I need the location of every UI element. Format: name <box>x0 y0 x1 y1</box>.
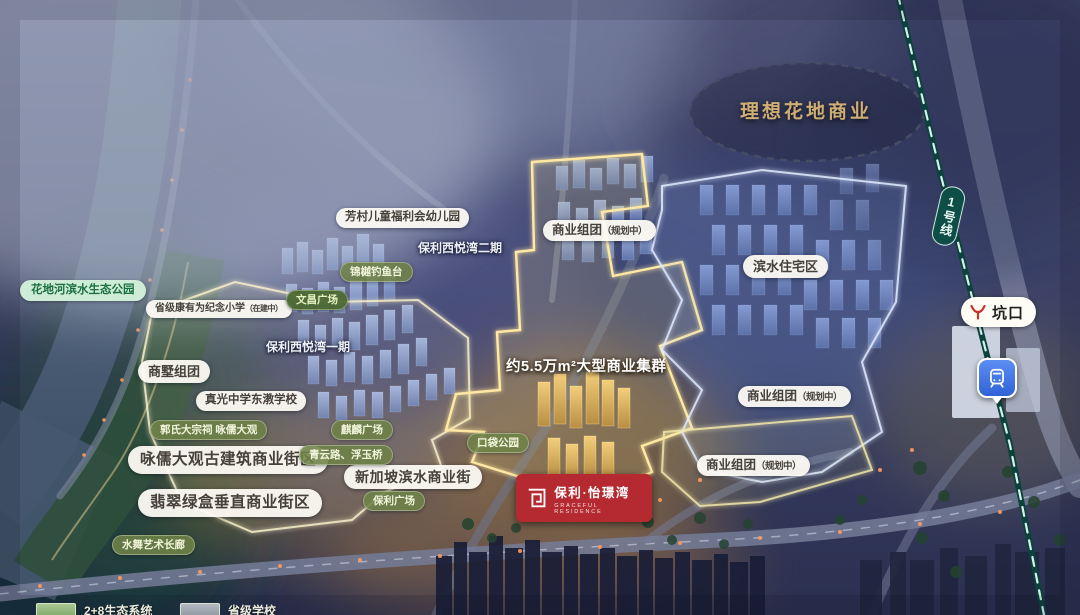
biz-group-note: （规划中） <box>756 461 801 472</box>
label-poly-plaza: 保利广场 <box>363 491 425 511</box>
station-name: 坑口 <box>992 302 1024 323</box>
legend-swatch-gray <box>180 603 220 615</box>
label-poly-xiyuewan-phase2: 保利西悦湾二期 <box>418 242 502 254</box>
label-kindergarten: 芳村儿童福利会幼儿园 <box>336 208 469 228</box>
biz-group-text: 商业组团 <box>552 223 602 237</box>
brand-subtitle: GRACEFUL RESIDENCE <box>554 503 643 515</box>
label-kangyouwei-note: （在建中） <box>245 304 283 313</box>
label-biz-group-east: 商业组团（规划中） <box>738 386 851 407</box>
legend-label: 2+8生态系统 <box>84 602 152 615</box>
legend-swatch-green <box>36 603 76 615</box>
label-kangyouwei-school-text: 省级康有为纪念小学 <box>155 303 245 314</box>
label-jinyue-diaoyutai: 锦樾钓鱼台 <box>340 262 413 282</box>
label-jade-green-box-street: 翡翠绿盒垂直商业街区 <box>138 489 322 517</box>
label-zhenguang-school: 真光中学东漖学校 <box>196 391 306 411</box>
label-water-art-gallery: 水舞艺术长廊 <box>112 535 195 555</box>
biz-group-text: 商业组团 <box>706 458 756 472</box>
guangzhou-metro-logo-icon <box>969 303 987 321</box>
label-biz-group-north: 商业组团（规划中） <box>543 220 656 241</box>
label-biz-group-southeast: 商业组团（规划中） <box>697 455 810 476</box>
label-wenchang-plaza: 文昌广场 <box>286 290 348 310</box>
label-yongru-heritage-street: 咏儒大观古建筑商业街区 <box>128 446 328 474</box>
legend-item-ecosystem: 2+8生态系统 <box>36 602 152 615</box>
commercial-cluster-title: 约5.5万m²大型商业集群 <box>506 360 666 375</box>
label-singapore-street: 新加坡滨水商业街 <box>344 465 482 489</box>
label-waterfront-residential: 滨水住宅区 <box>743 255 828 278</box>
metro-station-marker <box>977 358 1017 398</box>
legend-item-school: 省级学校 <box>180 602 276 615</box>
legend-label: 省级学校 <box>228 602 276 615</box>
brand-name: 保利·怡璟湾 <box>554 482 643 501</box>
label-huadi-river-park: 花地河滨水生态公园 <box>20 280 146 301</box>
label-poly-xiyuewan-phase1: 保利西悦湾一期 <box>266 341 350 353</box>
poly-brand-logo: 保利·怡璟湾 GRACEFUL RESIDENCE <box>516 474 652 522</box>
train-icon <box>986 367 1008 389</box>
label-kangyouwei-school: 省级康有为纪念小学（在建中） <box>146 300 292 318</box>
label-guoshi-ancestral-hall: 郭氏大宗祠 咏儒大观 <box>150 420 267 440</box>
label-qilin-plaza: 麒麟广场 <box>331 420 393 440</box>
biz-group-note: （规划中） <box>797 392 842 403</box>
metro-station-kengkou: 坑口 <box>961 297 1036 327</box>
aerial-masterplan-map: 理想花地商业 约5.5万m²大型商业集群 芳村儿童福利会幼儿园 省级康有为纪念小… <box>0 0 1080 615</box>
label-pocket-park: 口袋公园 <box>467 433 529 453</box>
label-villa-group: 商墅组团 <box>138 360 210 383</box>
ideal-huadi-title: 理想花地商业 <box>740 103 872 122</box>
poly-emblem-icon <box>525 486 547 510</box>
label-qingyun-fuyu-bridge: 青云路、浮玉桥 <box>299 445 393 465</box>
biz-group-text: 商业组团 <box>747 389 797 403</box>
biz-group-note: （规划中） <box>602 226 647 237</box>
